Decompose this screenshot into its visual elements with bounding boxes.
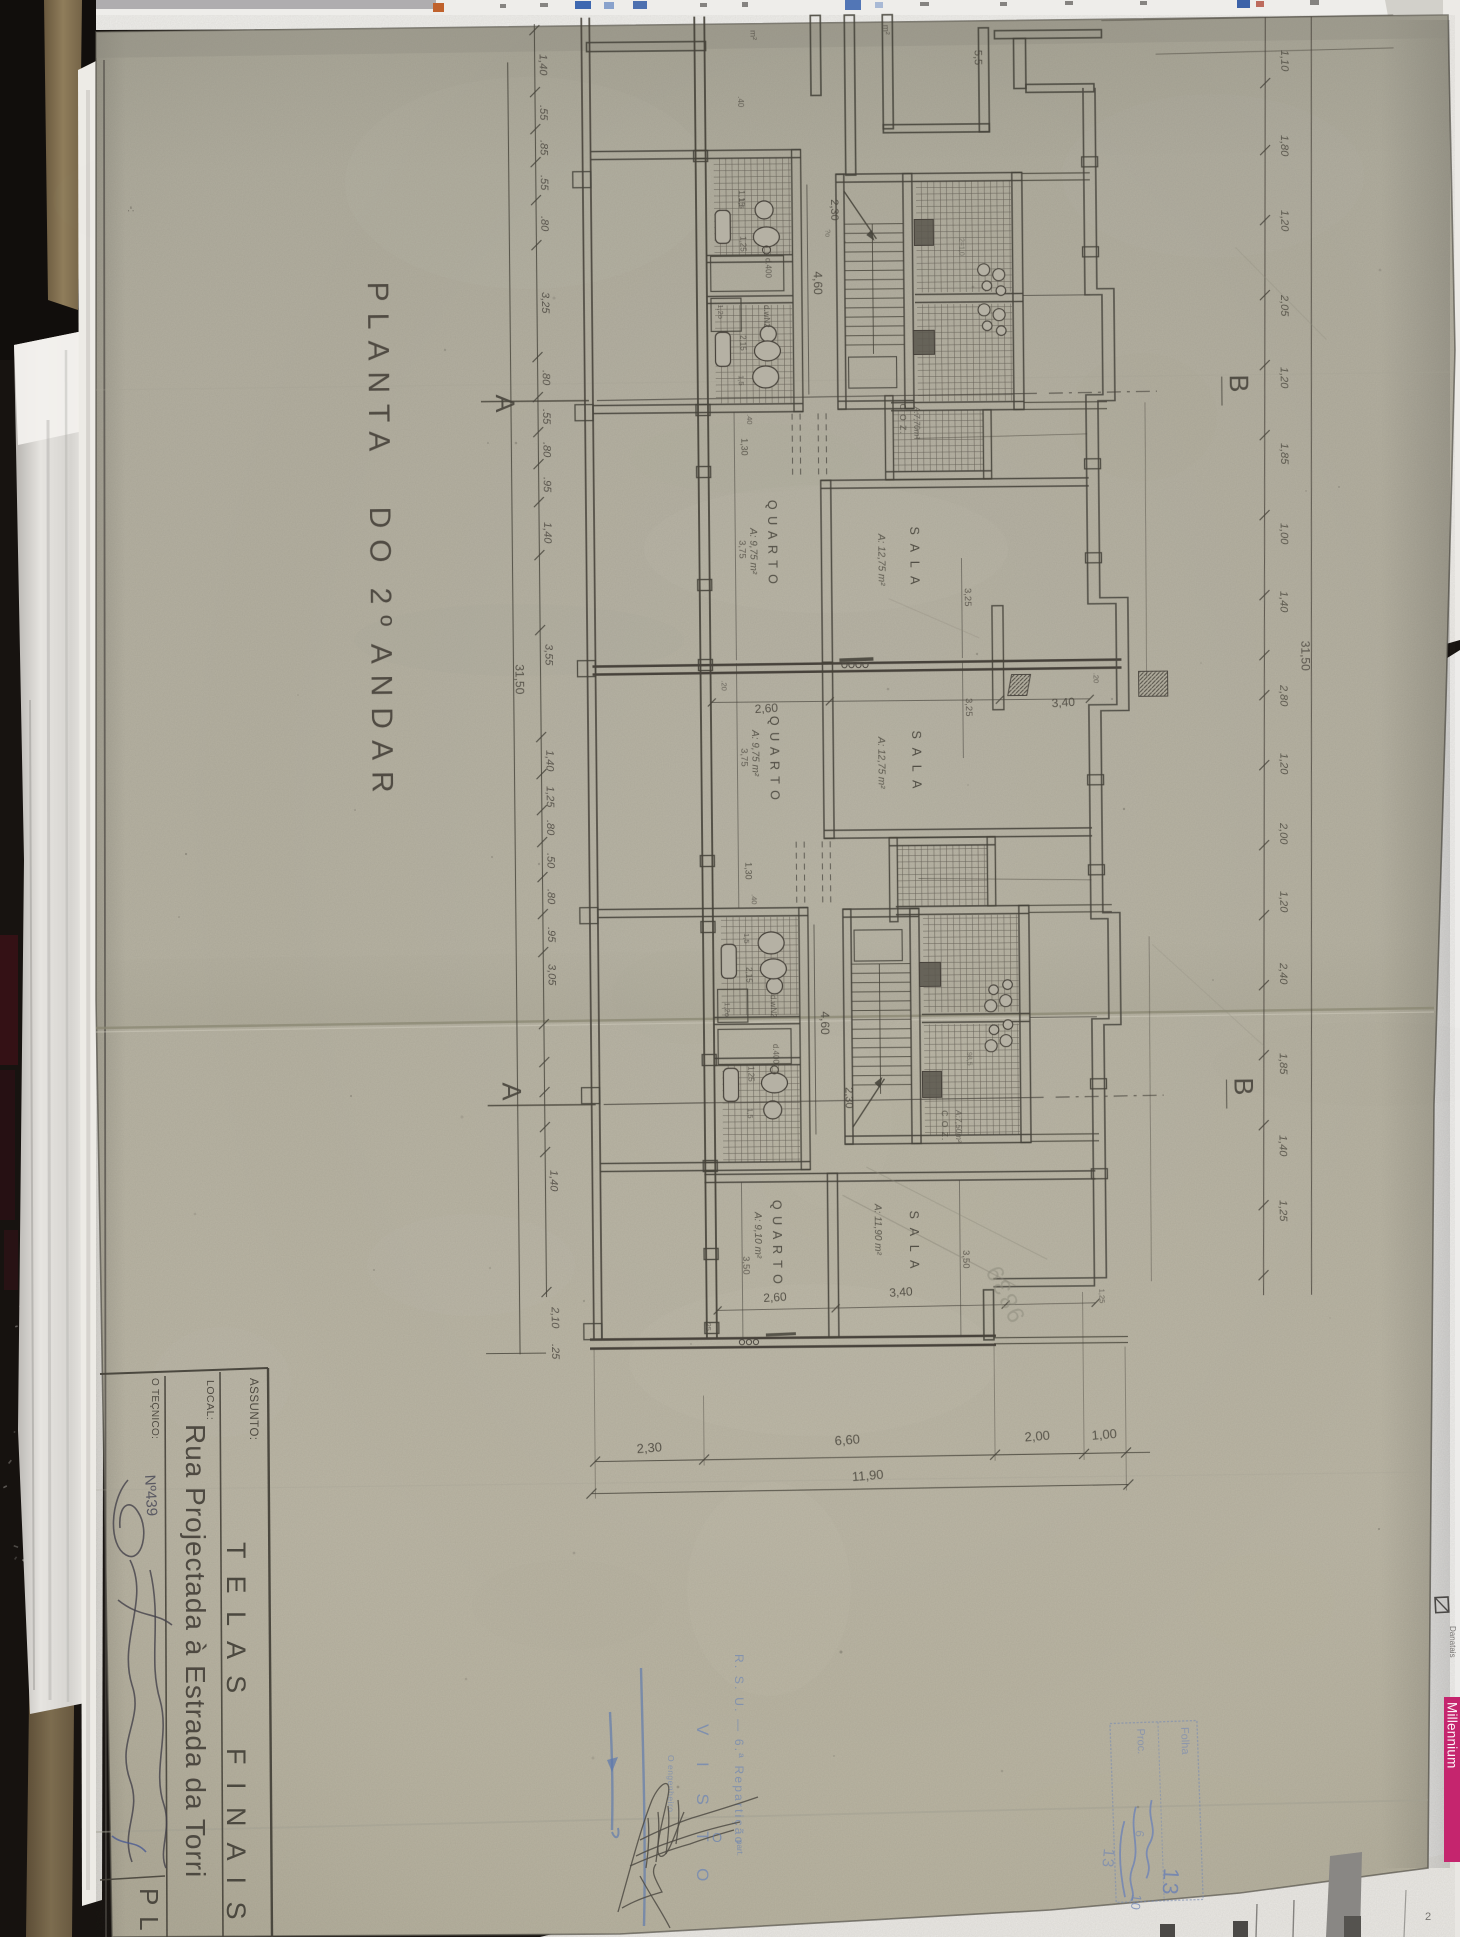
svg-text:4,60: 4,60 [811, 271, 825, 295]
svg-text:.40: .40 [750, 894, 759, 905]
svg-text:d.wN2: d.wN2 [762, 305, 771, 328]
svg-text:2,05: 2,05 [1278, 294, 1290, 317]
svg-text:.80: .80 [544, 820, 556, 836]
svg-text:3,25: 3,25 [962, 588, 973, 607]
svg-text:1,30: 1,30 [739, 438, 749, 456]
svg-text:3,25: 3,25 [963, 698, 974, 717]
svg-text:1,25: 1,25 [544, 786, 556, 808]
svg-text:LOCAL:: LOCAL: [204, 1380, 216, 1420]
svg-text:-:: -: [125, 206, 136, 212]
svg-text:3,40: 3,40 [889, 1284, 914, 1299]
svg-text:B: B [1224, 374, 1254, 392]
svg-text:6,60: 6,60 [834, 1431, 860, 1448]
svg-text:.85: .85 [537, 140, 549, 156]
svg-text:.95: .95 [541, 477, 553, 493]
svg-text:.20: .20 [1092, 673, 1101, 684]
svg-text:A: 9,75 m²: A: 9,75 m² [749, 729, 760, 777]
svg-text:d.wN2: d.wN2 [769, 995, 778, 1018]
svg-text:.80: .80 [538, 216, 550, 232]
svg-text:2,60: 2,60 [754, 701, 779, 716]
svg-text:.20: .20 [720, 680, 729, 691]
svg-text:d.400: d.400 [771, 1044, 780, 1065]
svg-text:2,80: 2,80 [1277, 684, 1289, 707]
svg-text:?o: ?o [823, 229, 830, 237]
svg-text:1,00: 1,00 [1278, 523, 1290, 545]
svg-text:Q U A R T O: Q U A R T O [765, 500, 780, 586]
svg-text:1,85: 1,85 [1277, 1053, 1289, 1075]
svg-text:PLANTA: PLANTA [361, 281, 396, 462]
svg-text:Millennium: Millennium [1445, 1702, 1460, 1769]
svg-text:m²: m² [881, 25, 891, 35]
svg-text:1,2o: 1,2o [723, 1002, 732, 1017]
svg-text:2=1,0: 2=1,0 [957, 238, 964, 256]
svg-text:1,20: 1,20 [1277, 891, 1289, 913]
svg-text:P L: P L [134, 1888, 164, 1933]
svg-text:1,40: 1,40 [1277, 1135, 1289, 1157]
svg-text:.25: .25 [704, 1320, 713, 1331]
svg-text:1,5: 1,5 [737, 375, 746, 386]
svg-text:3,55: 3,55 [542, 644, 554, 666]
svg-text:S A L A: S A L A [907, 526, 922, 587]
svg-text:1,5: 1,5 [737, 198, 746, 209]
svg-text:.55: .55 [540, 409, 552, 425]
svg-text:2,40: 2,40 [1277, 962, 1289, 985]
svg-text:.50: .50 [544, 853, 556, 869]
svg-text:.95: .95 [545, 927, 557, 943]
svg-text:1,80: 1,80 [1278, 135, 1290, 157]
svg-text:2,30: 2,30 [843, 1087, 855, 1109]
svg-text:3,05: 3,05 [545, 964, 557, 986]
svg-text:A: A [496, 1082, 526, 1100]
svg-text:98,5: 98,5 [965, 1052, 972, 1066]
svg-text:ASSUNTO:: ASSUNTO: [247, 1378, 259, 1441]
svg-text:Q U A R T O: Q U A R T O [770, 1200, 785, 1286]
svg-text:.55: .55 [537, 105, 549, 121]
svg-text:A: 12,75 m²: A: 12,75 m² [875, 736, 887, 789]
svg-text:T E L A S: T E L A S [221, 1542, 251, 1698]
svg-text:1,40: 1,40 [541, 522, 553, 544]
svg-text:1,20: 1,20 [1277, 753, 1289, 775]
svg-text:F I N A I S: F I N A I S [221, 1748, 251, 1925]
svg-text:.80: .80 [540, 442, 552, 458]
svg-text:1,5: 1,5 [746, 1108, 755, 1119]
svg-text:ANDAR: ANDAR [364, 643, 399, 803]
svg-text:2,15: 2,15 [744, 967, 753, 983]
svg-text:2: 2 [1425, 1911, 1431, 1923]
svg-text:A: 9,75 m²: A: 9,75 m² [747, 527, 758, 575]
svg-text:31,50: 31,50 [1298, 641, 1312, 671]
svg-text:A: A [490, 394, 520, 412]
svg-text:.80: .80 [545, 889, 557, 905]
svg-text:1,25: 1,25 [746, 1066, 755, 1082]
svg-text:3,25: 3,25 [539, 292, 551, 314]
svg-text:1,40: 1,40 [1277, 591, 1289, 613]
svg-text:1,00: 1,00 [1091, 1426, 1117, 1443]
svg-text:5,5: 5,5 [972, 50, 984, 65]
svg-text:13: 13 [1158, 1867, 1184, 1897]
svg-text:Rua Projectada à Estrada da To: Rua Projectada à Estrada da Torri [180, 1424, 211, 1878]
svg-text:3,75: 3,75 [736, 540, 747, 559]
svg-text:1,10: 1,10 [1278, 50, 1290, 72]
svg-text:R. S. U. — 6.ª Repartição: R. S. U. — 6.ª Repartição [732, 1654, 746, 1846]
svg-text:Danatais: Danatais [1448, 1626, 1457, 1658]
svg-text:2,15: 2,15 [738, 335, 747, 351]
svg-text:1,2o: 1,2o [716, 304, 725, 319]
svg-text:O TEÇNICO:: O TEÇNICO: [149, 1378, 160, 1439]
svg-text:DO: DO [363, 506, 397, 573]
svg-text:2,30: 2,30 [636, 1439, 662, 1456]
svg-text:C O Z.: C O Z. [898, 404, 908, 435]
svg-text:B: B [1228, 1077, 1258, 1095]
svg-text:2,00: 2,00 [1277, 822, 1289, 845]
svg-text:13: 13 [1098, 1848, 1117, 1869]
svg-text:m²: m² [748, 30, 758, 40]
svg-text:4,60: 4,60 [818, 1011, 832, 1035]
svg-text:d.400: d.400 [764, 258, 773, 279]
svg-text:1,5: 1,5 [742, 933, 751, 944]
svg-text:1,40: 1,40 [537, 54, 549, 76]
svg-text:A:7,50m²: A:7,50m² [954, 1109, 963, 1143]
svg-text:A:7,70m²: A:7,70m² [912, 405, 921, 439]
svg-text:V I S T O: V I S T O [693, 1724, 712, 1892]
svg-text:3,40: 3,40 [1051, 695, 1076, 710]
svg-text:A: 9,10 m²: A: 9,10 m² [752, 1211, 763, 1259]
svg-text:Q U A R T O: Q U A R T O [767, 716, 782, 802]
svg-text:10: 10 [1128, 1893, 1145, 1911]
svg-text:O: O [712, 1830, 722, 1845]
svg-text:2,60: 2,60 [763, 1290, 788, 1305]
svg-text:2,00: 2,00 [1024, 1428, 1050, 1445]
svg-text:1,40: 1,40 [547, 1170, 559, 1192]
svg-text:1,20: 1,20 [1278, 367, 1290, 389]
svg-text:2,30: 2,30 [828, 199, 840, 221]
svg-text:3,75: 3,75 [738, 748, 749, 767]
svg-text:Proc.: Proc. [1134, 1728, 1147, 1754]
svg-text:11,90: 11,90 [851, 1467, 884, 1484]
svg-text:S A L A: S A L A [909, 730, 924, 791]
svg-text:part.: part. [735, 1840, 744, 1856]
svg-text:.40: .40 [745, 414, 754, 425]
svg-text:2,10: 2,10 [549, 1306, 561, 1329]
svg-text:2º: 2º [364, 587, 397, 637]
svg-text:31,50: 31,50 [512, 664, 526, 694]
svg-text:1,25: 1,25 [1097, 1289, 1106, 1304]
svg-text:1,25: 1,25 [1277, 1200, 1289, 1222]
svg-text:S A L A: S A L A [907, 1210, 922, 1271]
svg-text:1,85: 1,85 [1278, 443, 1290, 465]
svg-text:.40: .40 [736, 96, 745, 108]
svg-text:Nº439: Nº439 [141, 1474, 160, 1516]
svg-text:.55: .55 [538, 175, 550, 191]
svg-text:.25: .25 [549, 1344, 561, 1360]
svg-text:1,25: 1,25 [738, 236, 747, 252]
svg-text:1,30: 1,30 [743, 862, 753, 880]
svg-text:.80: .80 [540, 370, 552, 386]
svg-text:A: 12,75 m²: A: 12,75 m² [875, 533, 887, 586]
svg-text:C O Z.: C O Z. [940, 1110, 950, 1141]
svg-text:Folha: Folha [1178, 1727, 1191, 1756]
svg-text:1,40: 1,40 [543, 750, 555, 772]
svg-text:1,20: 1,20 [1278, 210, 1290, 232]
